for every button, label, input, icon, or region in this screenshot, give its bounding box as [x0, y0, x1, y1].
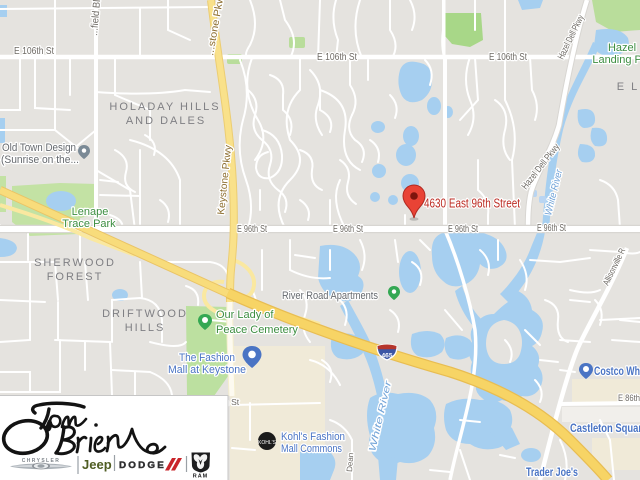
svg-text:Trace Park: Trace Park — [62, 218, 116, 230]
svg-text:E 96th St: E 96th St — [237, 224, 267, 235]
svg-text:SHERWOOD: SHERWOOD — [34, 257, 116, 269]
svg-text:E 96th St: E 96th St — [333, 224, 363, 235]
svg-text:Lenape: Lenape — [72, 206, 109, 218]
svg-text:E 86th: E 86th — [618, 393, 640, 403]
svg-text:KOHL'S: KOHL'S — [258, 440, 277, 446]
svg-text:DODGE: DODGE — [119, 460, 166, 470]
svg-text:Trader Joe's: Trader Joe's — [526, 467, 578, 479]
svg-text:Mall at Keystone: Mall at Keystone — [168, 364, 246, 376]
svg-text:Costco Wh: Costco Wh — [594, 366, 640, 378]
svg-text:E 106th St: E 106th St — [317, 52, 357, 63]
svg-text:Hazel: Hazel — [608, 42, 636, 54]
svg-text:Dean: Dean — [345, 452, 355, 472]
svg-text:FOREST: FOREST — [47, 271, 104, 283]
svg-text:Peace Cemetery: Peace Cemetery — [216, 324, 298, 336]
svg-text:DRIFTWOOD: DRIFTWOOD — [102, 308, 188, 320]
svg-text:Castleton Squar: Castleton Squar — [570, 421, 640, 435]
svg-text:E 96th St: E 96th St — [537, 223, 566, 234]
svg-text:4630 East 96th Street: 4630 East 96th Street — [424, 197, 520, 211]
svg-text:(Sunrise on the...: (Sunrise on the... — [1, 154, 79, 166]
svg-text:465: 465 — [382, 353, 393, 360]
svg-text:Landing Par: Landing Par — [592, 54, 640, 66]
svg-text:E 106th St: E 106th St — [14, 46, 54, 57]
svg-text:AND DALES: AND DALES — [126, 115, 206, 127]
svg-text:E L: E L — [617, 81, 640, 93]
svg-text:E 96th St: E 96th St — [448, 224, 478, 235]
svg-text:Old Town Design: Old Town Design — [2, 142, 76, 154]
svg-text:Jeep: Jeep — [82, 457, 112, 472]
svg-text:E 106th St: E 106th St — [489, 52, 527, 63]
svg-text:River Road Apartments: River Road Apartments — [282, 290, 378, 302]
svg-text:HOLADAY HILLS: HOLADAY HILLS — [109, 101, 220, 113]
svg-text:Our Lady of: Our Lady of — [216, 309, 274, 321]
svg-text:RAM: RAM — [193, 474, 209, 480]
svg-text:HILLS: HILLS — [125, 322, 166, 334]
svg-text:Kohl's Fashion: Kohl's Fashion — [281, 431, 345, 443]
svg-text:Mall Commons: Mall Commons — [281, 443, 342, 455]
svg-text:The Fashion: The Fashion — [179, 352, 235, 364]
